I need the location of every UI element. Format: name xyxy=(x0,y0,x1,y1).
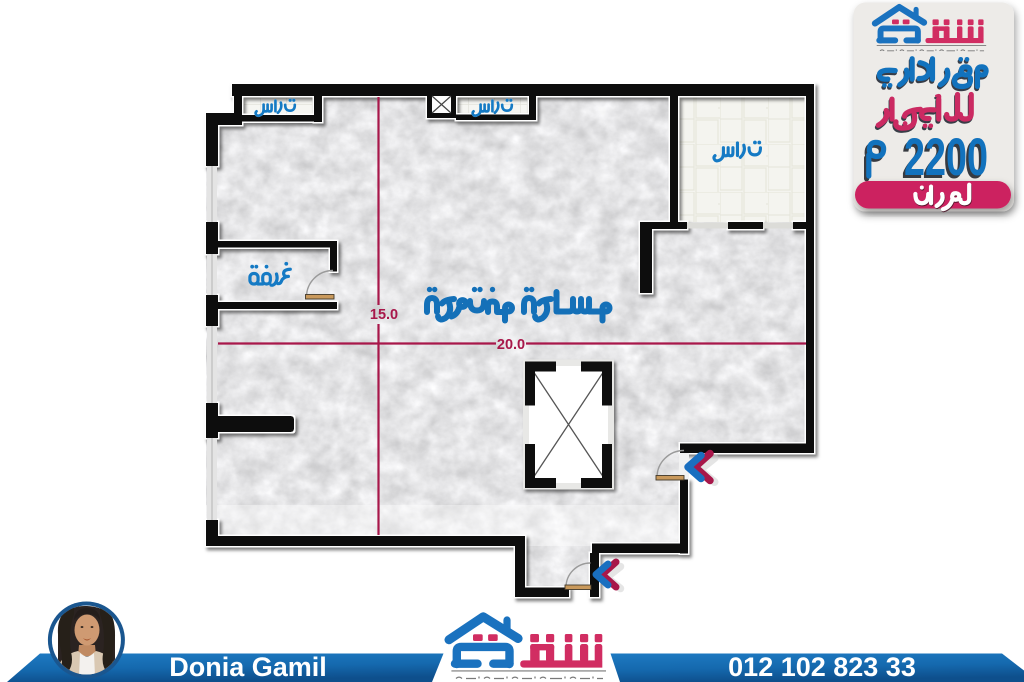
svg-text:2200: 2200 xyxy=(904,128,988,187)
svg-text:15.0: 15.0 xyxy=(370,307,398,323)
svg-text:012 102 823 33: 012 102 823 33 xyxy=(728,652,916,682)
svg-text:Donia Gamil: Donia Gamil xyxy=(169,652,327,682)
svg-text:20.0: 20.0 xyxy=(497,337,525,353)
